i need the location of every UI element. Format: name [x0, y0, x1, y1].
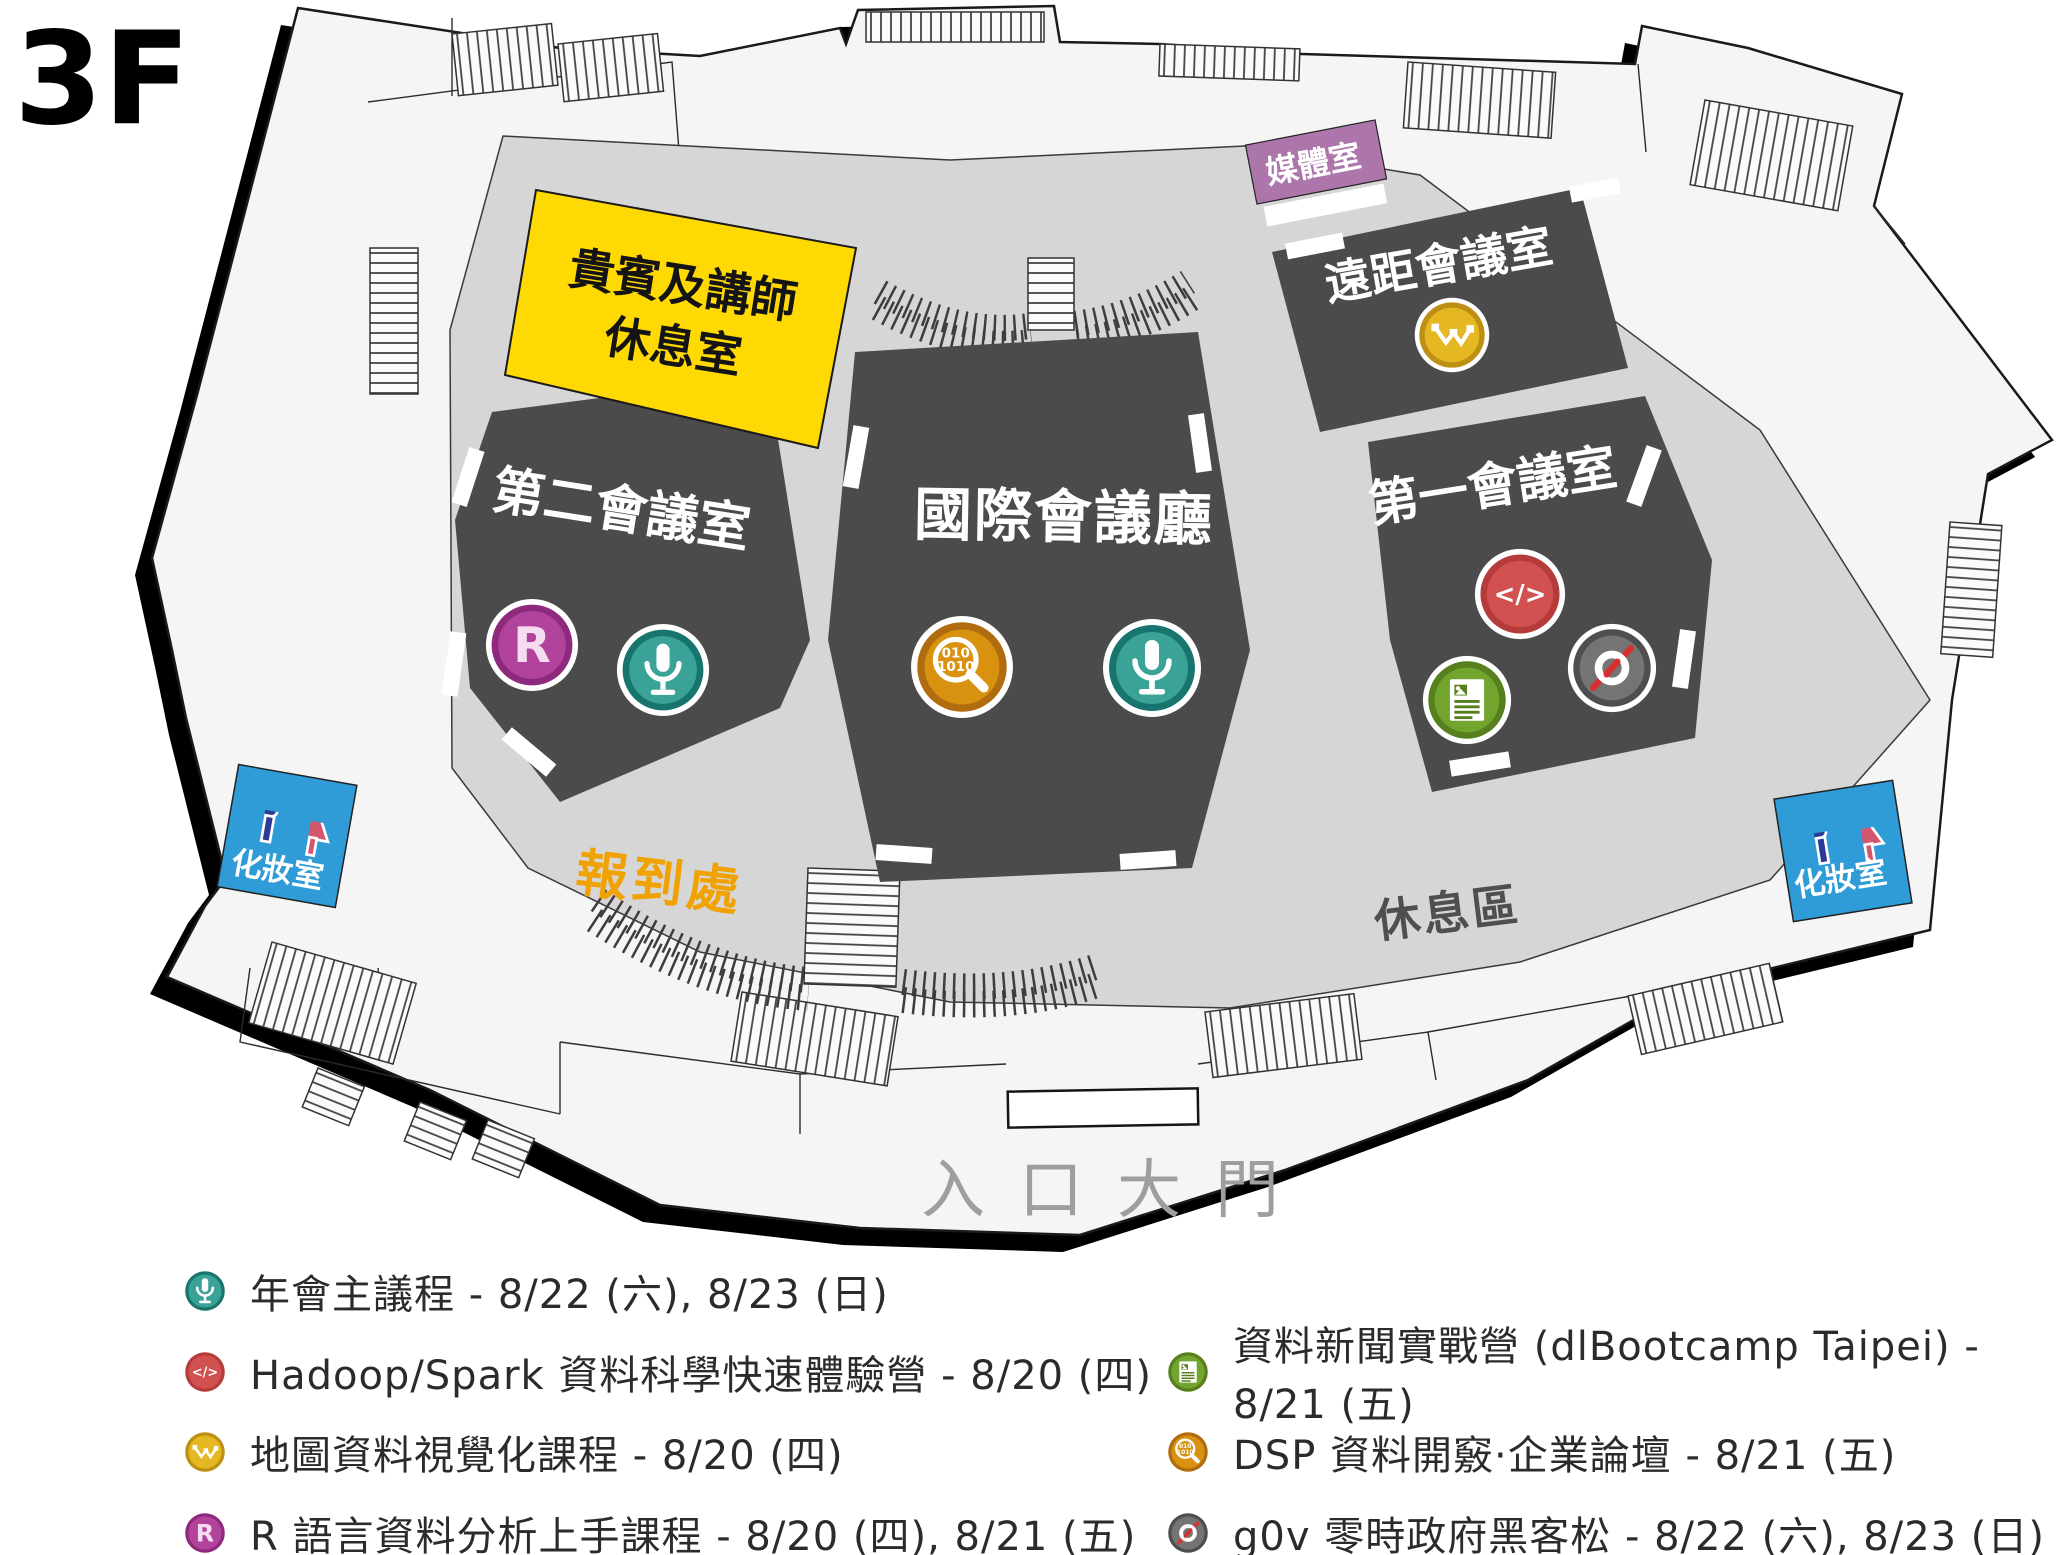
map-viz-icon: [1414, 297, 1490, 373]
legend-item-hadoop-spark: Hadoop/Spark 資料科學快速體驗營 - 8/20 (四): [182, 1343, 1152, 1401]
floor-label: 3F: [14, 16, 191, 144]
r-lang-icon: [182, 1510, 228, 1555]
code-icon: [182, 1349, 228, 1395]
data-explore-icon: [1165, 1429, 1211, 1475]
international-hall-label: 國際會議廳: [913, 467, 1214, 556]
news-icon: [1422, 655, 1512, 745]
legend-text: R 語言資料分析上手課程 - 8/20 (四), 8/21 (五): [250, 1504, 1136, 1555]
g0v-icon: [1165, 1510, 1211, 1555]
r-lang-icon: [485, 598, 579, 692]
mic-icon: [182, 1268, 228, 1314]
legend-item-g0v-hackathon: g0v 零時政府黑客松 - 8/22 (六), 8/23 (日): [1165, 1504, 2045, 1555]
entrance-door: [1008, 1088, 1199, 1127]
legend-text: g0v 零時政府黑客松 - 8/22 (六), 8/23 (日): [1233, 1504, 2045, 1555]
legend-text: 資料新聞實戰營 (dlBootcamp Taipei) - 8/21 (五): [1233, 1314, 2059, 1430]
legend-item-main-program: 年會主議程 - 8/22 (六), 8/23 (日): [182, 1262, 889, 1320]
g0v-icon: [1567, 623, 1657, 713]
legend-item-dsp-forum: DSP 資料開竅·企業論壇 - 8/21 (五): [1165, 1423, 1896, 1481]
international-hall-shape: [828, 332, 1250, 882]
restroom-right-shape: [1773, 776, 1912, 922]
legend-item-map-viz: 地圖資料視覺化課程 - 8/20 (四): [182, 1423, 844, 1481]
code-icon: [1474, 548, 1566, 640]
mic-icon: [1102, 618, 1202, 718]
floor-plan-page: R 010 1010 </>: [0, 0, 2059, 1555]
mic-icon: [616, 623, 710, 717]
legend-item-news-bootcamp: 資料新聞實戰營 (dlBootcamp Taipei) - 8/21 (五): [1165, 1314, 2059, 1430]
legend-text: Hadoop/Spark 資料科學快速體驗營 - 8/20 (四): [250, 1343, 1152, 1401]
legend-text: 年會主議程 - 8/22 (六), 8/23 (日): [250, 1262, 889, 1320]
legend-text: 地圖資料視覺化課程 - 8/20 (四): [250, 1423, 844, 1481]
news-icon: [1165, 1349, 1211, 1395]
map-viz-icon: [182, 1429, 228, 1475]
legend-item-r-course: R 語言資料分析上手課程 - 8/20 (四), 8/21 (五): [182, 1504, 1136, 1555]
legend-text: DSP 資料開竅·企業論壇 - 8/21 (五): [1233, 1423, 1896, 1481]
entrance-label: 入口大門: [887, 1139, 1313, 1231]
data-explore-icon: [910, 615, 1014, 719]
